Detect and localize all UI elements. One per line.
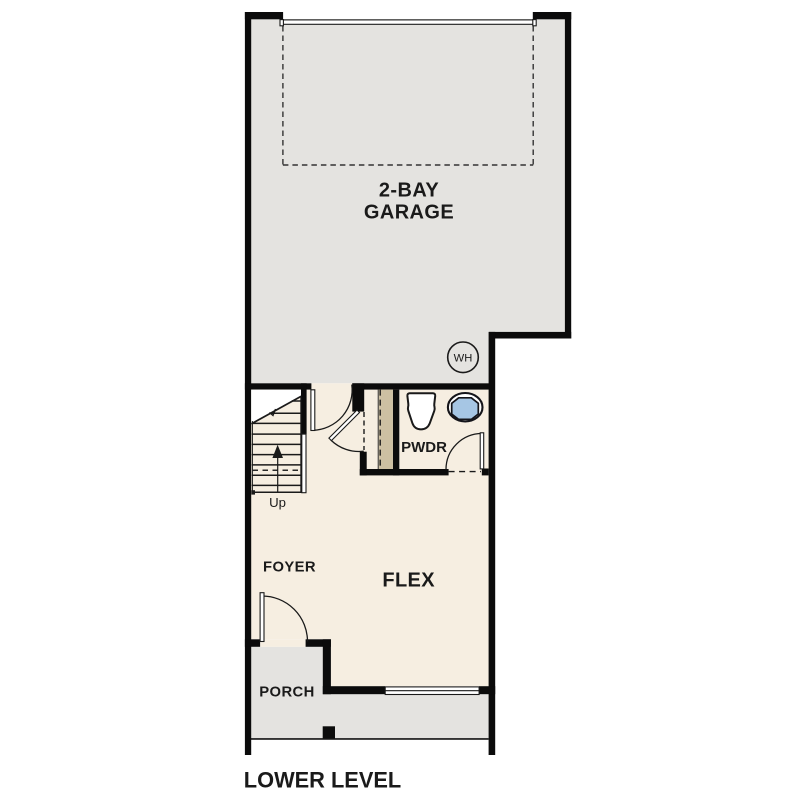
svg-text:2-BAY: 2-BAY	[379, 180, 439, 202]
svg-text:WH: WH	[454, 352, 473, 364]
svg-text:FLEX: FLEX	[382, 570, 435, 592]
svg-text:FOYER: FOYER	[263, 560, 316, 576]
svg-text:LOWER LEVEL: LOWER LEVEL	[244, 768, 401, 793]
svg-text:PORCH: PORCH	[259, 685, 314, 701]
svg-text:Up: Up	[269, 495, 286, 510]
svg-text:GARAGE: GARAGE	[364, 202, 454, 224]
svg-text:PWDR: PWDR	[401, 439, 447, 456]
